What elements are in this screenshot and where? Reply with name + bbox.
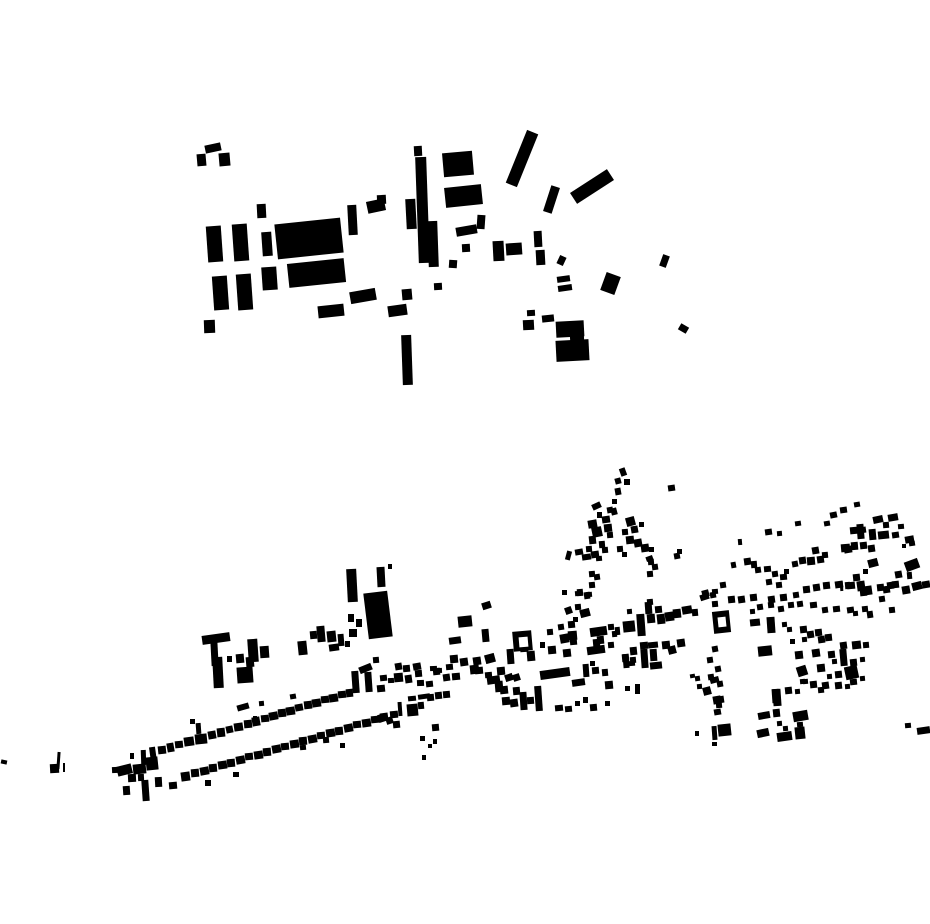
building-footprint: [361, 718, 371, 727]
building-footprint: [790, 639, 795, 644]
building-footprint: [513, 687, 521, 696]
building-footprint: [605, 681, 614, 690]
building-footprint: [590, 661, 595, 666]
building-footprint: [403, 665, 411, 673]
building-footprint: [204, 320, 215, 333]
building-footprint: [492, 241, 504, 262]
building-footprint: [523, 320, 535, 331]
building-footprint: [817, 664, 826, 673]
building-footprint: [765, 529, 773, 536]
building-footprint: [697, 684, 702, 689]
building-footprint: [206, 226, 223, 263]
building-footprint: [232, 224, 250, 262]
building-footprint: [878, 530, 890, 539]
building-footprint: [902, 544, 906, 548]
building-footprint: [710, 592, 717, 599]
building-footprint: [607, 532, 614, 539]
building-footprint: [321, 696, 330, 704]
building-footprint: [555, 705, 563, 712]
building-footprint: [245, 753, 254, 761]
building-footprint: [894, 570, 902, 578]
building-footprint: [640, 642, 649, 650]
building-footprint-map-stage: [0, 0, 930, 924]
building-footprint: [584, 592, 591, 600]
building-footprint: [497, 667, 506, 676]
building-footprint: [656, 614, 665, 625]
building-footprint: [863, 569, 868, 574]
building-footprint: [404, 675, 412, 684]
building-footprint: [123, 786, 131, 795]
building-footprint: [625, 686, 630, 691]
building-footprint: [519, 692, 527, 710]
building-footprint: [635, 689, 640, 694]
building-footprint: [235, 755, 245, 764]
building-footprint: [141, 780, 149, 801]
building-footprint: [676, 638, 685, 647]
building-footprint: [377, 195, 386, 204]
building-footprint: [720, 582, 727, 589]
building-footprint: [433, 739, 437, 744]
building-footprint-map: [0, 0, 930, 924]
building-footprint: [853, 611, 858, 616]
building-footprint: [807, 631, 815, 639]
building-footprint: [225, 725, 233, 733]
building-footprint: [444, 184, 483, 208]
building-footprint: [428, 744, 432, 748]
building-footprint: [346, 689, 354, 698]
building-footprint: [622, 552, 627, 557]
building-footprint: [597, 512, 602, 518]
building-footprint: [236, 666, 253, 683]
building-footprint: [348, 614, 354, 622]
building-footprint: [376, 567, 385, 587]
building-footprint: [452, 673, 461, 681]
building-footprint: [347, 205, 358, 235]
building-footprint: [196, 154, 206, 167]
building-footprint: [472, 656, 481, 665]
building-footprint: [887, 582, 895, 590]
building-footprint: [652, 564, 659, 571]
building-footprint: [259, 701, 264, 706]
building-footprint: [851, 542, 859, 551]
building-footprint: [290, 694, 297, 700]
building-footprint: [388, 678, 394, 683]
building-footprint: [783, 726, 788, 731]
building-footprint: [583, 697, 588, 703]
building-footprint: [542, 314, 555, 322]
building-footprint: [869, 529, 877, 541]
building-footprint: [822, 607, 829, 614]
building-footprint: [558, 624, 565, 631]
building-footprint: [462, 244, 470, 252]
building-footprint: [586, 546, 593, 553]
building-footprint: [782, 622, 787, 627]
building-footprint: [883, 522, 890, 529]
building-footprint: [793, 592, 800, 599]
building-footprint: [261, 232, 273, 257]
building-footprint: [728, 596, 736, 604]
building-footprint: [795, 689, 800, 694]
building-footprint: [877, 584, 885, 592]
building-footprint: [650, 661, 663, 669]
building-footprint: [195, 733, 208, 744]
building-footprint: [795, 651, 804, 660]
building-footprint: [536, 250, 546, 265]
building-footprint: [847, 582, 856, 590]
building-footprint: [285, 706, 295, 715]
building-footprint: [527, 651, 536, 662]
building-footprint: [797, 722, 803, 728]
building-footprint: [253, 716, 257, 722]
building-footprint: [217, 728, 226, 738]
building-footprint: [712, 695, 721, 704]
building-footprint: [380, 675, 388, 682]
building-footprint: [596, 556, 602, 562]
building-footprint: [205, 780, 211, 786]
building-footprint: [868, 545, 876, 553]
building-footprint: [190, 719, 195, 724]
building-footprint: [655, 606, 663, 614]
building-footprint: [433, 668, 441, 676]
building-footprint: [794, 727, 805, 740]
map-background: [0, 0, 930, 924]
building-footprint: [294, 703, 303, 711]
building-footprint: [608, 642, 615, 649]
building-footprint: [860, 657, 865, 662]
building-footprint: [141, 750, 147, 765]
building-footprint: [860, 676, 865, 681]
building-footprint: [755, 567, 762, 574]
building-footprint: [828, 651, 836, 659]
building-footprint: [415, 670, 423, 678]
building-footprint: [766, 579, 773, 586]
building-footprint: [824, 521, 831, 527]
building-footprint: [810, 602, 818, 609]
building-footprint: [593, 639, 601, 648]
building-footprint: [845, 684, 850, 689]
building-footprint: [420, 736, 425, 741]
building-footprint: [617, 546, 624, 553]
building-footprint: [645, 602, 653, 614]
building-footprint: [227, 656, 232, 662]
building-footprint: [785, 687, 793, 695]
building-footprint: [650, 649, 658, 661]
building-footprint: [787, 627, 792, 632]
building-footprint: [394, 673, 404, 683]
building-footprint: [300, 745, 306, 751]
building-footprint: [810, 681, 818, 689]
building-footprint: [364, 672, 372, 692]
building-footprint: [757, 604, 764, 611]
building-footprint: [776, 582, 783, 589]
building-footprint: [594, 574, 601, 581]
building-footprint: [822, 552, 829, 559]
building-footprint: [217, 760, 227, 769]
building-footprint: [155, 777, 163, 787]
building-footprint: [807, 557, 816, 566]
building-footprint: [799, 557, 807, 565]
building-footprint: [602, 515, 611, 523]
building-footprint: [442, 151, 474, 178]
building-footprint: [640, 543, 649, 552]
building-footprint: [346, 569, 358, 602]
building-footprint: [648, 641, 659, 648]
building-footprint: [426, 681, 434, 688]
building-footprint: [459, 657, 468, 666]
building-footprint: [340, 743, 345, 748]
building-footprint: [792, 561, 799, 568]
building-footprint: [209, 764, 218, 773]
building-footprint: [434, 283, 442, 290]
building-footprint: [570, 639, 577, 646]
building-footprint: [311, 698, 321, 707]
building-footprint: [570, 332, 585, 344]
building-footprint: [349, 629, 357, 637]
building-footprint: [401, 335, 413, 385]
building-footprint: [628, 661, 635, 667]
building-footprint: [602, 547, 609, 554]
building-footprint: [630, 647, 638, 656]
building-footprint: [328, 693, 338, 702]
building-footprint: [274, 218, 343, 260]
building-footprint: [695, 731, 699, 736]
building-footprint: [615, 627, 621, 635]
building-footprint: [647, 571, 654, 578]
building-footprint: [862, 606, 869, 613]
building-footprint: [257, 204, 267, 218]
building-footprint: [128, 774, 136, 782]
building-footprint: [310, 631, 318, 640]
building-footprint: [427, 221, 439, 267]
building-courtyard: [519, 637, 529, 648]
building-footprint: [500, 686, 509, 695]
building-footprint: [823, 582, 831, 590]
building-footprint: [839, 649, 847, 667]
building-footprint: [778, 606, 785, 613]
building-footprint: [183, 736, 194, 746]
building-footprint: [260, 646, 270, 659]
building-footprint: [405, 199, 417, 229]
building-footprint: [840, 642, 848, 650]
building-footprint: [548, 646, 557, 655]
building-footprint: [446, 664, 453, 671]
building-footprint: [63, 763, 65, 772]
building-footprint: [191, 769, 200, 778]
building-footprint: [592, 667, 600, 675]
building-footprint: [622, 620, 635, 632]
building-footprint: [323, 737, 330, 744]
building-footprint: [860, 542, 868, 550]
building-footprint: [811, 648, 820, 657]
building-footprint: [788, 602, 795, 609]
building-footprint: [589, 536, 597, 545]
building-footprint: [196, 723, 202, 734]
building-footprint: [534, 231, 543, 247]
building-footprint: [563, 649, 572, 658]
building-footprint: [614, 488, 621, 496]
building-footprint: [207, 730, 216, 739]
building-footprint: [604, 524, 613, 533]
building-footprint: [772, 571, 779, 578]
building-footprint: [475, 667, 484, 675]
building-footprint: [158, 746, 167, 755]
building-footprint: [289, 739, 299, 748]
building-footprint: [449, 260, 458, 269]
building-footprint: [562, 590, 567, 595]
building-footprint: [833, 606, 841, 613]
building-footprint: [626, 536, 635, 545]
building-footprint: [813, 584, 821, 592]
building-footprint: [750, 609, 755, 614]
building-footprint: [502, 697, 511, 706]
building-footprint: [236, 274, 253, 311]
building-footprint: [388, 564, 392, 569]
building-courtyard: [717, 617, 726, 628]
building-footprint: [768, 602, 775, 609]
building-footprint: [844, 665, 859, 680]
building-footprint: [589, 582, 596, 589]
building-footprint: [764, 566, 771, 573]
building-footprint: [299, 737, 308, 746]
building-footprint: [435, 692, 443, 700]
building-footprint: [180, 771, 190, 781]
building-footprint: [707, 657, 714, 664]
building-footprint: [639, 522, 644, 527]
building-footprint: [261, 267, 278, 291]
building-footprint: [130, 753, 134, 759]
building-footprint: [509, 698, 518, 707]
building-footprint: [863, 642, 870, 649]
building-footprint: [345, 641, 350, 647]
building-footprint: [630, 525, 638, 533]
building-footprint: [412, 662, 421, 670]
building-footprint: [608, 624, 615, 631]
building-footprint: [590, 704, 598, 712]
building-footprint: [540, 642, 545, 648]
building-footprint: [647, 614, 656, 624]
building-footprint: [547, 629, 554, 636]
building-footprint: [233, 772, 239, 777]
building-footprint: [627, 609, 632, 614]
building-footprint: [692, 609, 699, 616]
building-footprint: [622, 654, 630, 663]
building-footprint: [307, 734, 317, 743]
building-footprint: [803, 679, 808, 684]
building-footprint: [450, 655, 459, 664]
building-footprint: [853, 574, 861, 582]
building-footprint: [271, 744, 281, 753]
building-footprint: [427, 694, 435, 702]
building-footprint: [325, 728, 335, 737]
building-footprint: [457, 615, 472, 627]
building-footprint: [373, 657, 380, 664]
building-footprint: [668, 485, 676, 492]
building-footprint: [852, 641, 862, 650]
building-footprint: [901, 585, 910, 594]
building-footprint: [622, 529, 629, 536]
building-footprint: [856, 524, 864, 540]
building-footprint: [227, 759, 236, 768]
building-footprint: [575, 604, 582, 611]
building-footprint: [712, 646, 719, 653]
building-footprint: [818, 636, 826, 644]
building-footprint: [575, 701, 580, 706]
building-footprint: [772, 689, 781, 707]
building-footprint: [481, 629, 489, 643]
building-footprint: [377, 685, 386, 693]
building-footprint: [731, 562, 737, 569]
building-footprint: [780, 594, 788, 602]
building-footprint: [212, 657, 224, 688]
building-footprint: [233, 722, 243, 731]
building-footprint: [583, 664, 590, 677]
building-footprint: [921, 580, 930, 588]
building-footprint: [850, 679, 858, 686]
building-footprint: [402, 289, 413, 301]
building-footprint: [422, 755, 426, 760]
building-footprint: [406, 704, 418, 717]
building-footprint: [681, 605, 692, 615]
building-footprint: [738, 539, 743, 545]
building-footprint: [750, 618, 761, 626]
building-footprint: [717, 723, 731, 736]
building-footprint: [690, 674, 696, 679]
building-footprint: [640, 649, 648, 668]
building-footprint: [268, 711, 278, 720]
building-footprint: [605, 701, 610, 706]
building-footprint: [253, 750, 263, 759]
building-footprint: [815, 629, 823, 637]
building-footprint: [506, 649, 514, 664]
building-footprint: [715, 666, 722, 673]
building-footprint: [751, 561, 758, 568]
building-footprint: [635, 684, 640, 689]
building-footprint: [898, 524, 904, 530]
building-footprint: [212, 276, 229, 311]
building-footprint: [527, 697, 534, 704]
building-footprint: [343, 723, 353, 732]
building-footprint: [337, 634, 344, 646]
building-footprint: [326, 631, 336, 643]
building-footprint: [758, 645, 773, 656]
building-footprint: [909, 541, 916, 547]
building-footprint: [777, 721, 782, 726]
building-footprint: [281, 743, 290, 751]
building-footprint: [443, 674, 451, 682]
building-footprint: [784, 569, 789, 574]
building-footprint: [573, 617, 578, 622]
building-footprint: [393, 721, 401, 729]
building-footprint: [356, 619, 362, 627]
building-footprint: [263, 748, 272, 757]
building-footprint: [818, 687, 825, 694]
building-footprint: [244, 720, 253, 729]
building-footprint: [800, 626, 808, 634]
building-footprint: [624, 479, 630, 485]
building-footprint: [261, 715, 270, 723]
building-footprint: [602, 669, 609, 676]
building-footprint: [862, 585, 872, 595]
building-footprint: [677, 549, 682, 554]
building-footprint: [802, 637, 807, 642]
building-footprint: [750, 594, 758, 602]
building-footprint: [175, 741, 184, 749]
building-footprint: [780, 574, 787, 581]
building-footprint: [133, 763, 147, 774]
building-footprint: [803, 586, 811, 594]
building-footprint: [795, 521, 802, 527]
building-footprint: [408, 696, 416, 702]
